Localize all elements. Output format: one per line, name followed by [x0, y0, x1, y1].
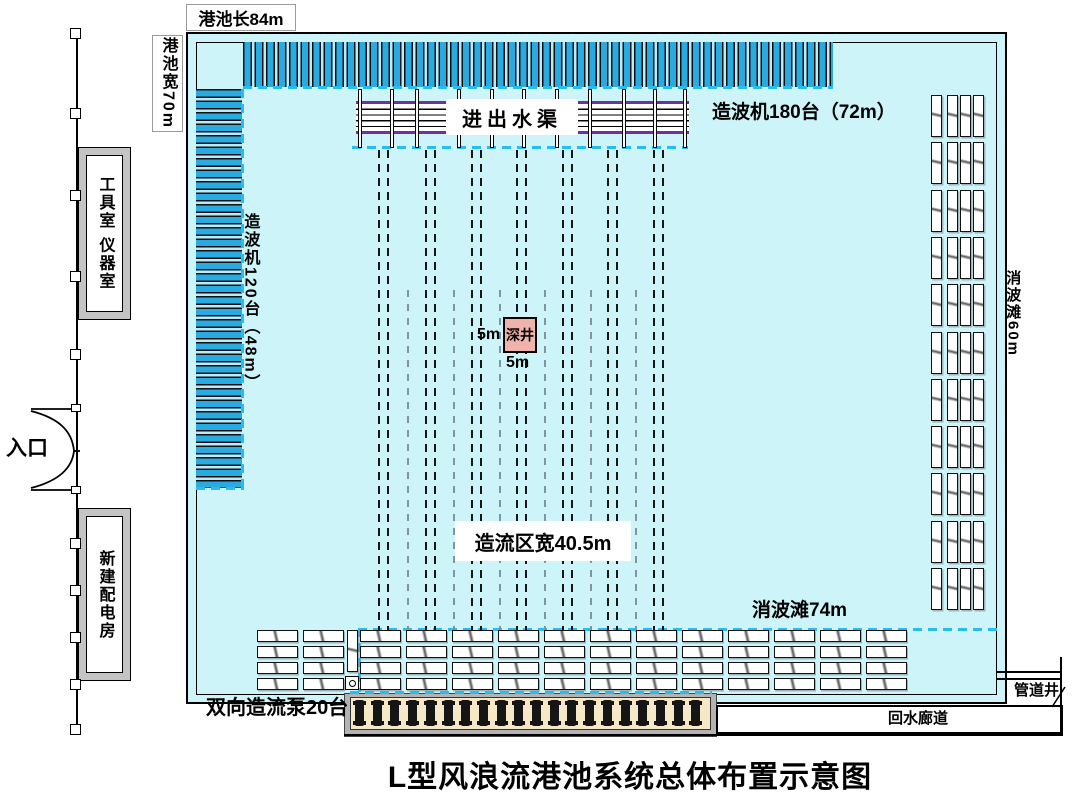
right-absorber-slat — [947, 426, 958, 468]
bottom-absorber-slat — [544, 630, 585, 642]
inlet-channel-right-band — [576, 101, 689, 134]
flow-pump — [638, 700, 647, 726]
flow-pump — [373, 700, 382, 726]
flow-guide-line-faint — [635, 290, 637, 632]
bottom-absorber-slat — [498, 662, 539, 674]
basin-length-label: 港池长84m — [186, 4, 296, 31]
right-absorber-slat — [960, 284, 971, 326]
bottom-absorber-slat — [590, 662, 631, 674]
right-absorber-slat — [960, 521, 971, 563]
bottom-absorber-slat — [728, 630, 769, 642]
flow-pump — [656, 700, 665, 726]
right-absorber-slat — [931, 142, 942, 184]
boundary-fence — [76, 28, 78, 730]
bottom-absorber-slat — [452, 662, 493, 674]
right-absorber-slat — [960, 379, 971, 421]
deep-well: 深井 — [503, 317, 537, 353]
right-absorber-slat — [931, 568, 942, 610]
right-absorber-slat — [960, 332, 971, 374]
flow-pump — [479, 700, 488, 726]
fence-post — [70, 108, 81, 119]
pump-bed-dashed-top — [350, 691, 712, 694]
deep-well-height-label: 5m — [506, 354, 529, 372]
power-room-label: 新建配电房 — [93, 550, 117, 640]
left-wavemaker-strip — [196, 89, 242, 488]
flow-pump — [674, 700, 683, 726]
bottom-absorber-slat — [636, 662, 677, 674]
bottom-absorber-slat — [544, 678, 585, 690]
right-absorber-slat — [960, 237, 971, 279]
pipe-line-2 — [997, 678, 1061, 680]
bottom-absorber-slat — [452, 678, 493, 690]
fence-post — [70, 28, 81, 39]
flow-zone-label-box: 造流区宽40.5m — [455, 521, 631, 561]
door-hinge — [71, 404, 81, 412]
flow-pump — [550, 700, 559, 726]
right-absorber-slat — [973, 190, 984, 232]
channel-post — [358, 89, 362, 148]
flow-guide-line-faint — [453, 290, 455, 632]
bottom-absorber-slat — [820, 662, 861, 674]
flow-guide-line — [653, 150, 655, 632]
bottom-absorber-slat — [866, 646, 907, 658]
right-absorber-slat — [960, 426, 971, 468]
right-absorber-slat — [931, 190, 942, 232]
bottom-absorber-slat — [866, 678, 907, 690]
bottom-absorber-slat — [406, 646, 447, 658]
fence-post — [70, 538, 81, 549]
flow-guide-line-faint — [407, 290, 409, 632]
channel-post — [415, 89, 419, 148]
bottom-absorber-slat — [303, 678, 344, 690]
fence-post — [70, 679, 81, 690]
basin-inner-wall — [196, 42, 997, 695]
bottom-absorber-slat — [820, 678, 861, 690]
bottom-absorber-slat — [774, 678, 815, 690]
flow-guide-line-faint — [544, 290, 546, 632]
right-absorber-slat — [960, 568, 971, 610]
right-absorber-slat — [947, 568, 958, 610]
bottom-absorber-slat — [590, 646, 631, 658]
flow-pump — [567, 700, 576, 726]
right-absorber-slat — [931, 426, 942, 468]
channel-dashed-line — [352, 146, 688, 149]
bottom-absorber-slat — [544, 662, 585, 674]
power-room-interior: 新建配电房 — [86, 516, 123, 673]
left-wavemaker-dashed-bottom — [196, 487, 244, 490]
deep-well-width-label: 5m — [477, 326, 500, 344]
bottom-absorber-slat — [682, 662, 723, 674]
pump-label: 双向造流泵20台 — [206, 697, 348, 720]
flow-pump — [691, 700, 700, 726]
flow-pump — [585, 700, 594, 726]
right-absorber-slat — [973, 521, 984, 563]
flow-pump — [355, 700, 364, 726]
bottom-absorber-slat — [636, 646, 677, 658]
right-absorber-slat — [960, 473, 971, 515]
flow-pump — [390, 700, 399, 726]
bottom-absorber-slat — [728, 646, 769, 658]
bottom-absorber-slat — [636, 630, 677, 642]
channel-post — [390, 89, 394, 148]
right-absorber-slat — [931, 95, 942, 137]
corner-slat — [347, 630, 358, 672]
bottom-absorber-slat — [257, 678, 298, 690]
flow-guide-line-faint — [590, 290, 592, 632]
right-absorber-slat — [947, 473, 958, 515]
right-absorber-slat — [931, 332, 942, 374]
right-absorber-slat — [973, 142, 984, 184]
drain-marker — [345, 676, 359, 690]
top-wavemaker-strip — [243, 42, 833, 87]
bottom-absorber-slat — [728, 662, 769, 674]
right-absorber-slat — [973, 568, 984, 610]
flow-pump — [444, 700, 453, 726]
right-absorber-slat — [960, 95, 971, 137]
top-wavemaker-dashed-edge — [243, 86, 833, 89]
bottom-absorber-slat — [303, 662, 344, 674]
right-absorber-slat — [931, 379, 942, 421]
bottom-absorber-slat — [257, 630, 298, 642]
bottom-absorber-slat — [498, 678, 539, 690]
right-absorber-label: 消波滩60m — [1004, 270, 1021, 357]
right-absorber-slat — [973, 95, 984, 137]
right-absorber-slat — [947, 521, 958, 563]
bottom-absorber-slat — [360, 630, 401, 642]
right-absorber-slat — [947, 379, 958, 421]
bottom-absorber-slat — [774, 630, 815, 642]
flow-guide-line — [378, 150, 380, 632]
right-absorber-slat — [931, 284, 942, 326]
left-wavemaker-label: 造波机120台（48m） — [240, 213, 258, 392]
bottom-absorber-slat — [820, 646, 861, 658]
fence-post — [70, 271, 81, 282]
flow-pump — [514, 700, 523, 726]
flow-guide-line — [662, 150, 664, 632]
right-absorber-slat — [973, 473, 984, 515]
top-wavemaker-label: 造波机180台（72m） — [712, 102, 896, 124]
right-absorber-slat — [960, 142, 971, 184]
bottom-absorber-slat — [774, 662, 815, 674]
right-absorber-slat — [931, 473, 942, 515]
bottom-absorber-slat — [406, 662, 447, 674]
bottom-absorber-slat — [682, 630, 723, 642]
basin-width-label: 港池宽70m — [152, 35, 183, 132]
bottom-absorber-slat — [498, 630, 539, 642]
right-absorber-slat — [931, 521, 942, 563]
right-absorber-slat — [973, 237, 984, 279]
layout-diagram: 入口 工具室 仪器室 新建配电房 港池长84m 港池宽70m 进出水渠 造波机1… — [0, 0, 1081, 802]
bottom-absorber-slat — [303, 630, 344, 642]
corridor-bottom-line — [344, 734, 1063, 736]
bottom-absorber-slat — [452, 646, 493, 658]
flow-guide-line — [387, 150, 389, 632]
flow-pump — [621, 700, 630, 726]
right-absorber-slat — [947, 190, 958, 232]
flow-pump — [461, 700, 470, 726]
bottom-absorber-slat — [406, 678, 447, 690]
bottom-absorber-slat — [406, 630, 447, 642]
tool-room-label: 工具室 仪器室 — [93, 176, 117, 290]
fence-post — [70, 349, 81, 360]
bottom-absorber-slat — [774, 646, 815, 658]
fence-post — [70, 632, 81, 643]
bottom-absorber-slat — [636, 678, 677, 690]
bottom-absorber-slat — [360, 678, 401, 690]
tool-room-interior: 工具室 仪器室 — [86, 155, 123, 312]
door-hinge — [71, 486, 81, 494]
right-absorber-slat — [947, 237, 958, 279]
pipe-line-1 — [997, 671, 1061, 673]
bottom-absorber-slat — [866, 662, 907, 674]
tool-room-building: 工具室 仪器室 — [78, 147, 131, 320]
right-absorber-slat — [947, 332, 958, 374]
fence-post — [70, 585, 81, 596]
fence-post — [70, 724, 81, 735]
bottom-absorber-slat — [257, 662, 298, 674]
bottom-absorber-slat — [303, 646, 344, 658]
channel-post — [653, 89, 657, 148]
channel-post — [683, 89, 687, 148]
flow-pump — [426, 700, 435, 726]
fence-post — [70, 190, 81, 201]
right-absorber-slat — [947, 142, 958, 184]
bottom-absorber-slat — [820, 630, 861, 642]
flow-pump — [497, 700, 506, 726]
bottom-absorber-slat — [360, 646, 401, 658]
right-absorber-slat — [931, 237, 942, 279]
pipe-shaft-label: 管道井 — [1014, 682, 1059, 699]
bottom-absorber-slat — [682, 678, 723, 690]
page-title: L型风浪流港池系统总体布置示意图 — [280, 752, 980, 796]
bottom-absorber-slat — [728, 678, 769, 690]
right-absorber-slat — [947, 95, 958, 137]
flow-pump — [603, 700, 612, 726]
flow-guide-line — [425, 150, 427, 632]
flow-pump — [408, 700, 417, 726]
bottom-absorber-slat — [590, 630, 631, 642]
flow-guide-line — [434, 150, 436, 632]
flow-pump — [532, 700, 541, 726]
right-absorber-slat — [973, 379, 984, 421]
bottom-absorber-label: 消波滩74m — [752, 600, 847, 622]
bottom-absorber-slat — [498, 646, 539, 658]
power-room-building: 新建配电房 — [78, 508, 131, 681]
bottom-absorber-slat — [452, 630, 493, 642]
right-absorber-slat — [973, 426, 984, 468]
bottom-absorber-slat — [257, 646, 298, 658]
bottom-absorber-slat — [544, 646, 585, 658]
bottom-absorber-slat — [360, 662, 401, 674]
return-corridor-label: 回水廊道 — [868, 710, 968, 727]
bottom-absorber-slat — [866, 630, 907, 642]
channel-post — [622, 89, 626, 148]
bottom-absorber-slat — [682, 646, 723, 658]
right-absorber-slat — [973, 284, 984, 326]
inlet-channel-left-band — [356, 101, 448, 134]
inlet-channel-label-box: 进出水渠 — [446, 99, 578, 135]
right-absorber-slat — [973, 332, 984, 374]
channel-post — [588, 89, 592, 148]
right-absorber-slat — [947, 284, 958, 326]
right-absorber-slat — [960, 190, 971, 232]
bottom-absorber-slat — [590, 678, 631, 690]
